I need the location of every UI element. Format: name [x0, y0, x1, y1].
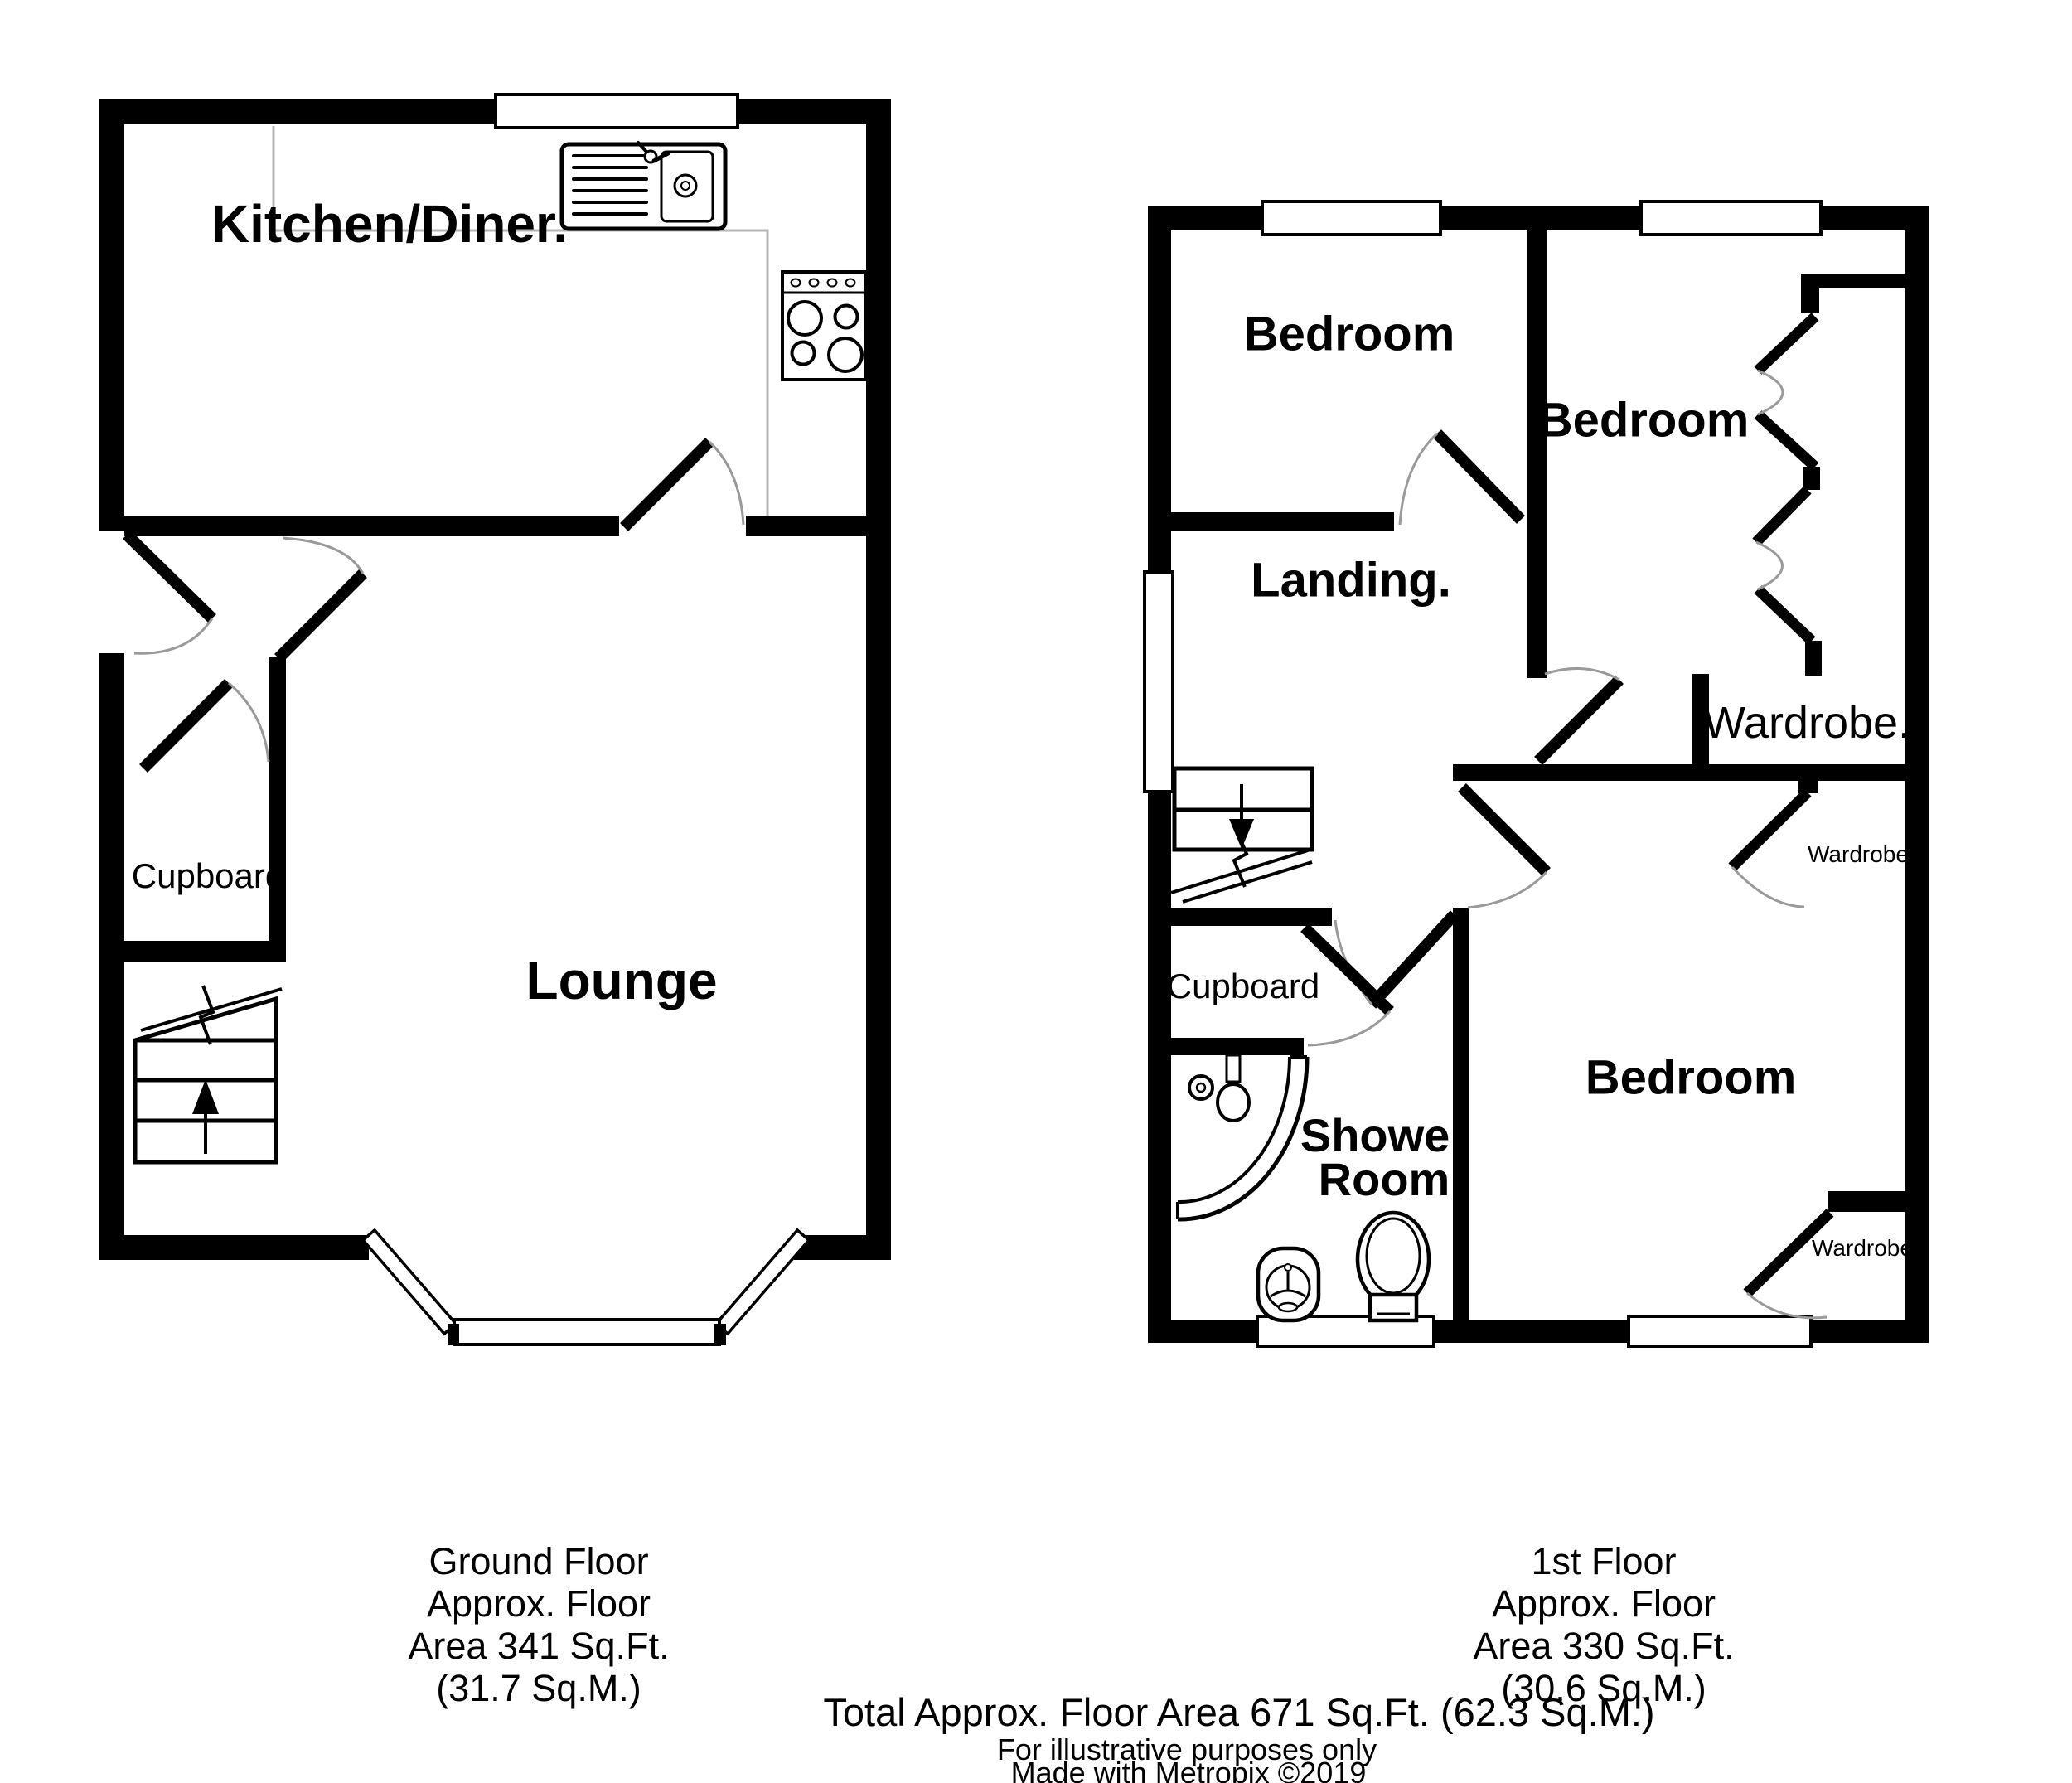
bedroom-rear-door [1538, 668, 1619, 761]
door-swing-arc [1545, 668, 1619, 680]
first-floor-caption: 1st Floor Approx. Floor Area 330 Sq.Ft. … [1473, 1540, 1734, 1709]
room-label-shower-room: Shower Room [1272, 1113, 1496, 1201]
toilet-flush-button [1285, 1264, 1291, 1271]
sink-drain-center [681, 182, 690, 190]
wall-segment [1905, 206, 1929, 1343]
door-swing-arc [1747, 1293, 1827, 1318]
room-label-lounge: Lounge [525, 950, 717, 1011]
kitchen-window [496, 94, 738, 128]
cooker-knob [810, 279, 819, 287]
caption-line: Area 341 Sq.Ft. [408, 1625, 669, 1667]
caption-line: 1st Floor [1473, 1540, 1734, 1582]
door-leaf [1538, 680, 1619, 761]
caption-line: Area 330 Sq.Ft. [1473, 1625, 1734, 1667]
room-label-bedroom-front: Bedroom [1244, 307, 1455, 362]
caption-line: Approx. Floor [408, 1582, 669, 1625]
bifold-leaf [1758, 589, 1812, 641]
room-label-landing: Landing. [1251, 553, 1451, 608]
door-leaf [1372, 914, 1455, 1005]
caption-line: (31.7 Sq.M.) [408, 1667, 669, 1709]
ground-floor-plan [99, 94, 891, 1345]
pedestal-basin-icon [1358, 1213, 1429, 1320]
door-leaf [624, 442, 709, 527]
bedroom-front-door [1400, 434, 1521, 525]
room-label-wardrobe-main: Wardrobe. [1703, 697, 1910, 749]
caption-line: Ground Floor [408, 1540, 669, 1582]
bifold-leaf [1758, 317, 1815, 371]
cooker-knob [828, 279, 837, 287]
cooker-knob [846, 279, 855, 287]
wall-segment [866, 99, 891, 1260]
bedroom-third-door [1462, 787, 1547, 908]
floorplan-canvas: Kitchen/Diner. Lounge Cupboard Bedroom B… [0, 0, 2072, 1783]
kitchen-door [624, 442, 743, 527]
cooker-hob-icon [782, 272, 865, 380]
wall-segment [99, 1235, 369, 1260]
door-swing-arc [1468, 872, 1547, 908]
bifold-swing-arc [1756, 542, 1783, 589]
toilet-icon [1258, 1248, 1319, 1320]
room-label-wardrobe-top: Wardrobe [1808, 841, 1909, 868]
door-swing-arc [229, 683, 269, 762]
wall-segment [1801, 288, 1819, 313]
room-label-first-cupboard: Cupboard [1167, 967, 1319, 1006]
floorplan-drawing [0, 0, 2072, 1783]
door-leaf [127, 535, 212, 618]
total-floor-area: Total Approx. Floor Area 671 Sq.Ft. (62.… [823, 1689, 1654, 1735]
door-swing-arc [283, 538, 363, 574]
door-swing-arc [1732, 867, 1804, 907]
bay-mullion [714, 1324, 726, 1345]
bay-glass-left [363, 1230, 456, 1334]
bay-glass-right [716, 1230, 809, 1334]
shower-room-door [1335, 914, 1455, 1005]
door-leaf [1462, 787, 1547, 872]
cooker-burner [835, 306, 858, 328]
bay-glass-front [454, 1320, 719, 1345]
bifold-swing-arc [1758, 371, 1783, 414]
shower-drain-center [1197, 1083, 1205, 1092]
wall-segment [1453, 764, 1905, 781]
toilet-base [1279, 1303, 1297, 1311]
room-label-ground-cupboard: Cupboard [132, 856, 284, 896]
kitchen-sink-icon [562, 143, 725, 229]
door-leaf [143, 683, 229, 768]
basin-bowl [1218, 1084, 1249, 1121]
bedroom-third-window [1629, 1316, 1811, 1346]
bifold-wardrobe-doors [1756, 317, 1822, 676]
bifold-hinge-block [1805, 641, 1822, 676]
wall-segment [1148, 1038, 1304, 1055]
bedroom-rear-window [1641, 201, 1821, 235]
bifold-leaf [1756, 490, 1808, 542]
basin-tap [1227, 1055, 1240, 1082]
wall-segment [1801, 274, 1905, 288]
bifold-leaf [1758, 414, 1815, 467]
door-swing-arc [1400, 434, 1437, 525]
room-label-bedroom-rear: Bedroom [1538, 393, 1750, 448]
door-swing-arc [1308, 1011, 1390, 1045]
door-swing-arc [709, 442, 743, 525]
pedestal-base [1370, 1295, 1416, 1320]
cupboard-door [143, 683, 269, 768]
cooker-burner [788, 302, 821, 335]
door-leaf [1732, 792, 1808, 867]
ground-floor-caption: Ground Floor Approx. Floor Area 341 Sq.F… [408, 1540, 669, 1709]
wall-segment [1828, 1191, 1905, 1212]
room-label-bedroom-third: Bedroom [1585, 1050, 1797, 1106]
door-leaf [278, 574, 363, 658]
wall-segment [99, 941, 286, 962]
lounge-door [278, 538, 363, 658]
first-floor-plan [1145, 201, 1929, 1346]
cooker-knob [792, 279, 801, 287]
bifold-hinge-block [1803, 467, 1820, 490]
metropix-credit: Made with Metropix ©2019 [1011, 1756, 1367, 1783]
wardrobe-bottom-door [1747, 1213, 1830, 1318]
front-door [127, 535, 212, 653]
bay-mullion [448, 1324, 459, 1345]
caption-line: Approx. Floor [1473, 1582, 1734, 1625]
cooker-burner [792, 342, 815, 365]
bedroom-front-window [1262, 201, 1440, 235]
wall-segment [1148, 792, 1171, 1343]
staircase-down-icon [1171, 768, 1312, 902]
cooker-burner [829, 338, 862, 371]
wash-basin-icon [1218, 1055, 1249, 1121]
ground-floor-windows [363, 94, 809, 1345]
door-swing-arc [134, 618, 212, 653]
door-leaf [1437, 434, 1521, 520]
landing-window [1145, 572, 1173, 792]
wall-segment [1148, 206, 1171, 572]
wall-segment [99, 99, 124, 531]
room-label-kitchen-diner: Kitchen/Diner. [211, 193, 568, 254]
staircase-up-icon [135, 986, 282, 1162]
wall-segment [746, 516, 866, 536]
ground-floor-doors [127, 442, 743, 768]
bay-window [363, 1230, 809, 1345]
room-label-wardrobe-bottom: Wardrobe [1812, 1235, 1913, 1262]
wall-segment [124, 516, 619, 536]
wall-segment [1148, 908, 1332, 926]
wardrobe-top-door [1732, 792, 1808, 907]
pedestal-bowl-inner [1367, 1219, 1420, 1293]
wall-segment [269, 657, 286, 962]
wall-segment [1171, 512, 1394, 531]
